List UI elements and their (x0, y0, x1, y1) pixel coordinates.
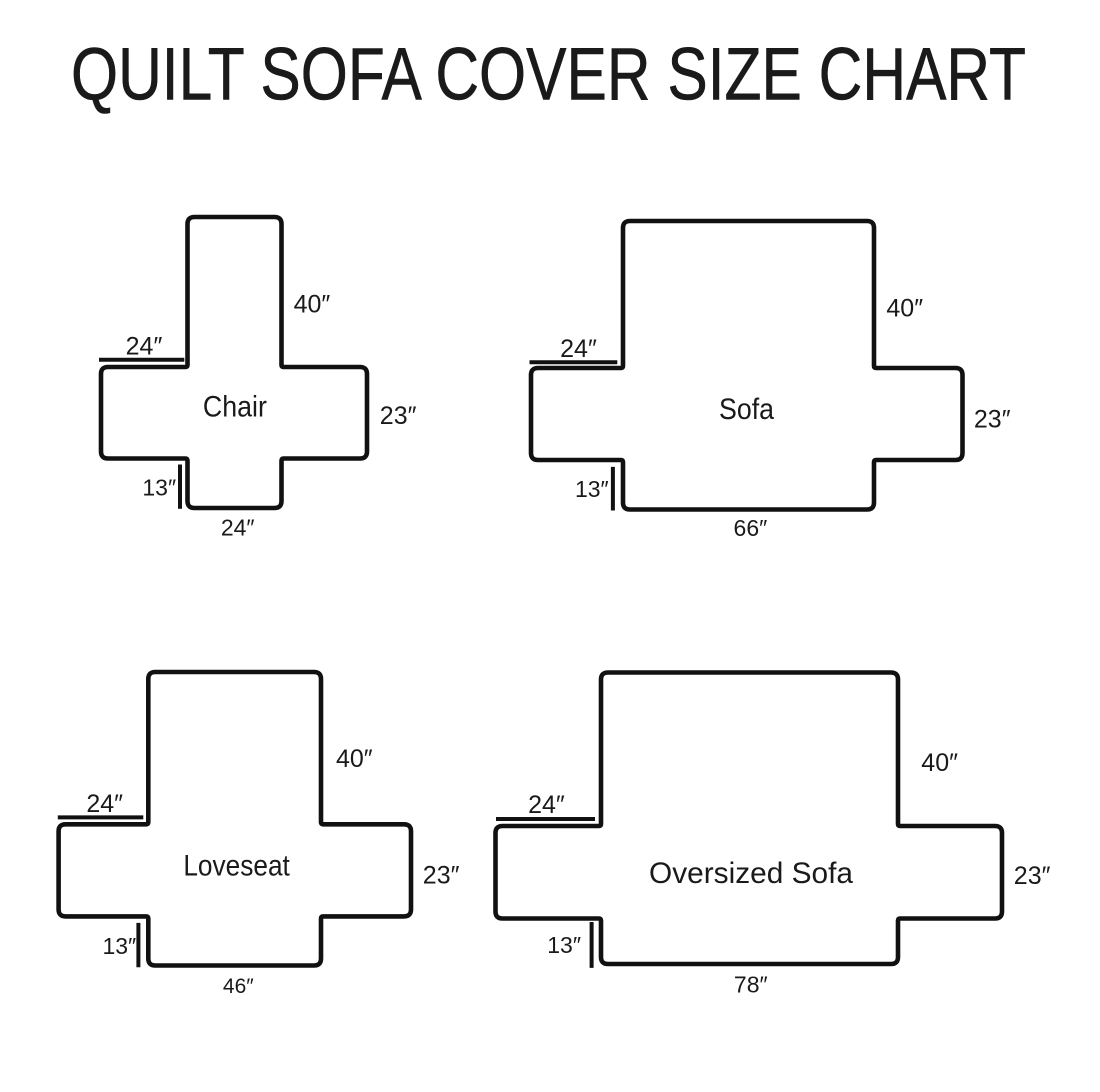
svg-text:40″: 40″ (921, 749, 958, 777)
svg-text:Oversized Sofa: Oversized Sofa (649, 857, 853, 890)
svg-text:23″: 23″ (423, 862, 460, 890)
svg-text:66″: 66″ (734, 515, 768, 541)
svg-text:Loveseat: Loveseat (183, 850, 290, 883)
svg-text:24″: 24″ (221, 515, 255, 541)
svg-text:24″: 24″ (126, 333, 163, 361)
svg-text:13″: 13″ (575, 476, 609, 502)
svg-text:46″: 46″ (223, 975, 254, 998)
svg-text:40″: 40″ (294, 290, 331, 318)
svg-text:23″: 23″ (1014, 862, 1051, 890)
svg-text:13″: 13″ (547, 932, 581, 958)
svg-text:24″: 24″ (560, 335, 597, 363)
svg-text:40″: 40″ (336, 745, 373, 773)
svg-text:78″: 78″ (734, 972, 768, 998)
svg-text:13″: 13″ (102, 933, 136, 959)
svg-text:Chair: Chair (203, 390, 267, 423)
svg-text:23″: 23″ (974, 406, 1011, 434)
svg-text:QUILT SOFA COVER SIZE CHART: QUILT SOFA COVER SIZE CHART (71, 32, 1026, 115)
svg-text:23″: 23″ (380, 402, 417, 430)
svg-text:Sofa: Sofa (719, 393, 774, 426)
svg-text:24″: 24″ (86, 790, 123, 818)
svg-text:24″: 24″ (528, 791, 565, 819)
svg-text:13″: 13″ (142, 474, 176, 500)
svg-text:40″: 40″ (886, 294, 923, 322)
